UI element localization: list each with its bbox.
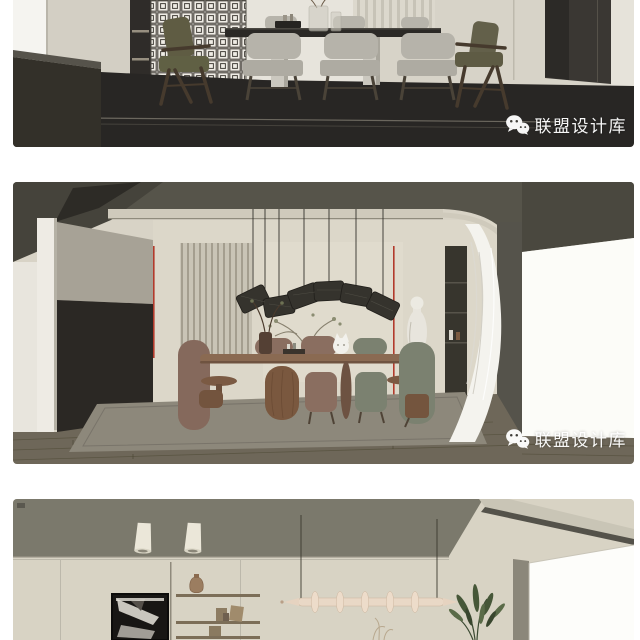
photo-dining-room-earth[interactable]: 联盟设计库 xyxy=(13,182,634,464)
chair-seat-sage xyxy=(355,372,387,412)
window xyxy=(497,222,634,440)
chair-back-sage-1 xyxy=(353,338,387,356)
tall-chair-left xyxy=(178,340,210,430)
render-earth-dining xyxy=(13,182,634,464)
ceiling xyxy=(13,499,483,556)
watermark-text: 联盟设计库 xyxy=(535,112,628,137)
disc-chair-edge xyxy=(341,361,352,419)
render-cream-living xyxy=(13,499,634,640)
wechat-icon xyxy=(505,428,530,449)
dark-wall-panel xyxy=(545,0,611,84)
wechat-icon xyxy=(505,114,530,135)
chair-seat-mauve xyxy=(305,372,337,412)
watermark-text: 联盟设计库 xyxy=(535,426,628,451)
watermark: 联盟设计库 xyxy=(505,426,628,451)
photo-living-room-cream[interactable] xyxy=(13,499,634,640)
watermark: 联盟设计库 xyxy=(505,112,628,137)
kitchen-island xyxy=(13,50,101,147)
chair-back-mauve-2 xyxy=(301,336,337,356)
abstract-artwork xyxy=(112,594,168,640)
wall-niche-shelf xyxy=(445,246,467,400)
photo-dining-room-dark[interactable]: 联盟设计库 xyxy=(13,0,634,147)
article-page: 联盟设计库 xyxy=(0,0,640,640)
